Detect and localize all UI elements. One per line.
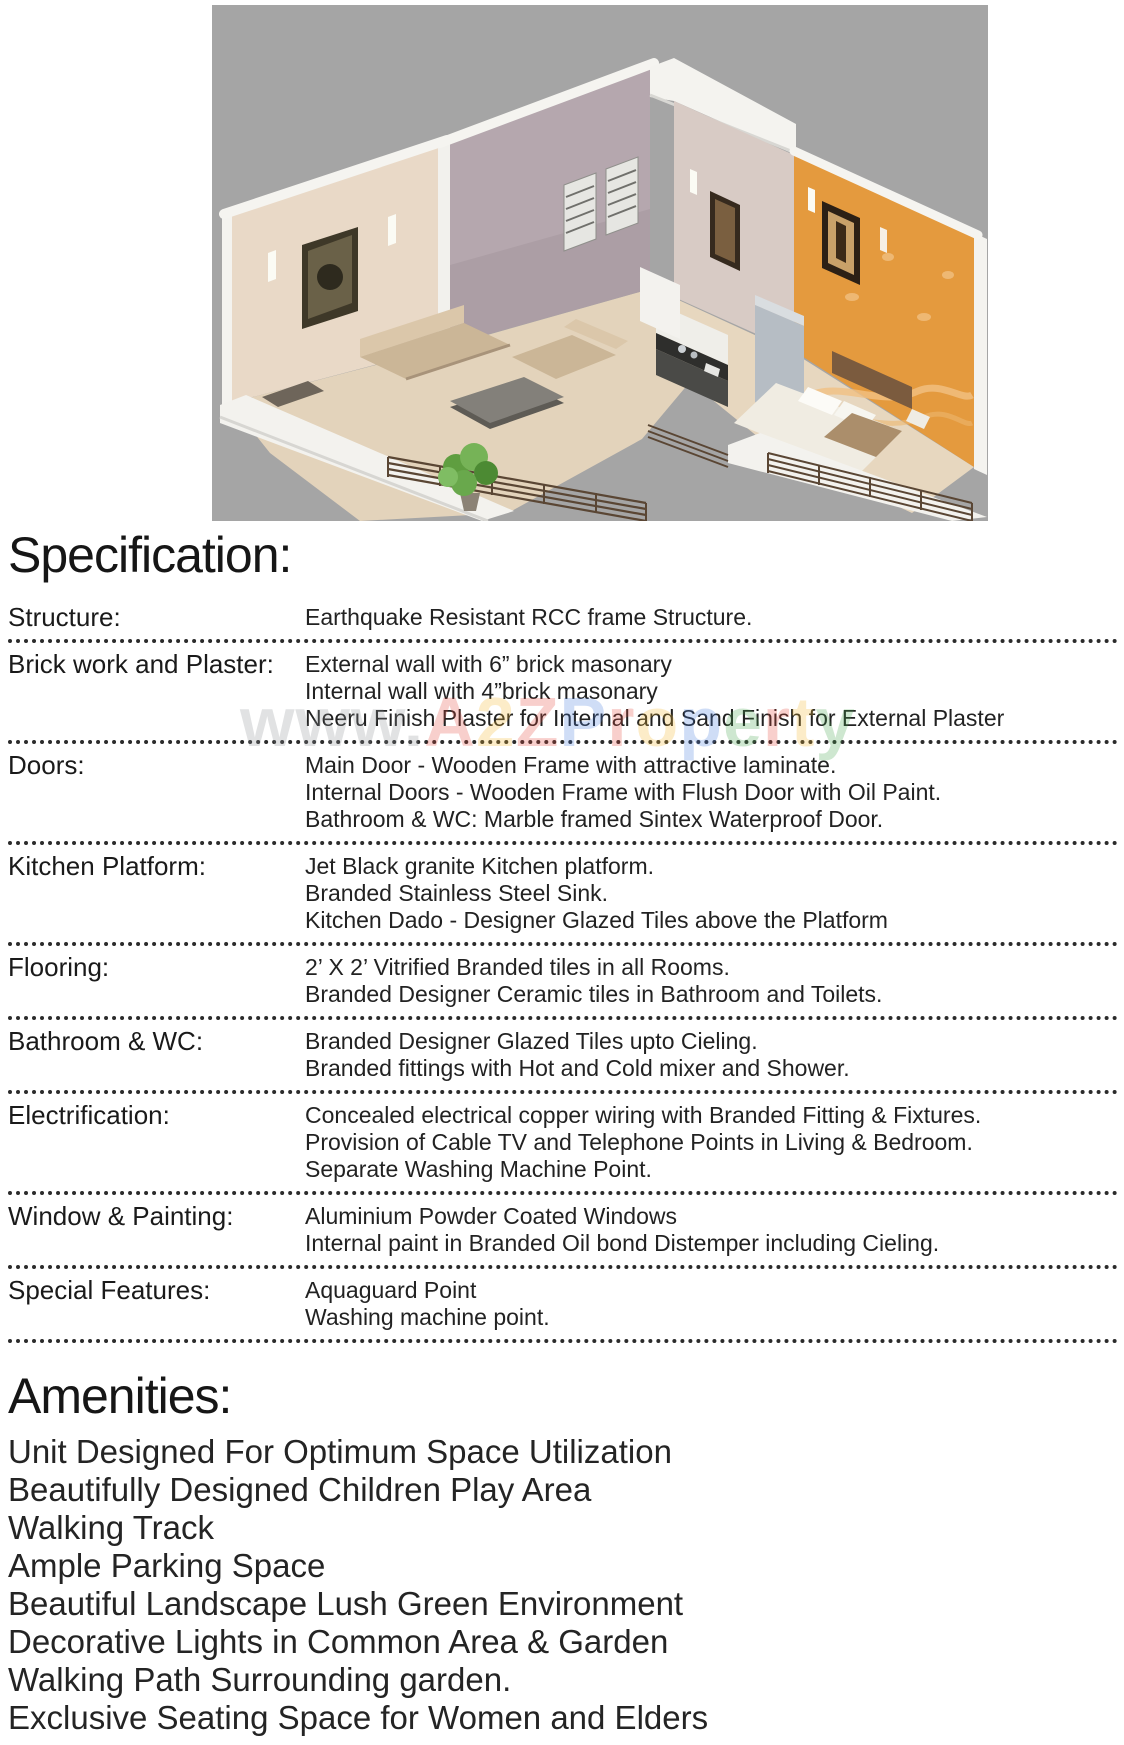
spec-value-line: Aluminium Powder Coated Windows	[305, 1203, 1118, 1230]
spec-row: Window & Painting: Aluminium Powder Coat…	[8, 1195, 1118, 1265]
spec-row: Brick work and Plaster: External wall wi…	[8, 643, 1118, 740]
content-area: Specification: Structure: Earthquake Res…	[8, 524, 1118, 1737]
wall-sconce-icon	[880, 227, 887, 253]
amenity-item: Walking Track	[8, 1509, 1118, 1547]
amenity-item: Beautifully Designed Children Play Area	[8, 1471, 1118, 1509]
wall-sconce-icon	[808, 187, 815, 213]
spec-value-line: Bathroom & WC: Marble framed Sintex Wate…	[305, 806, 1118, 833]
spec-value-line: Internal paint in Branded Oil bond Diste…	[305, 1230, 1118, 1257]
specification-title: Specification:	[8, 528, 1118, 582]
spec-row: Structure: Earthquake Resistant RCC fram…	[8, 596, 1118, 639]
spec-label: Bathroom & WC:	[8, 1027, 305, 1055]
amenities-title: Amenities:	[8, 1369, 1118, 1423]
spec-value-line: Neeru Finish Plaster for Internal and Sa…	[305, 705, 1118, 732]
amenity-item: Decorative Lights in Common Area & Garde…	[8, 1623, 1118, 1661]
spec-value-line: Earthquake Resistant RCC frame Structure…	[305, 604, 1118, 631]
spec-label: Brick work and Plaster:	[8, 650, 305, 678]
amenity-item: Beautiful Landscape Lush Green Environme…	[8, 1585, 1118, 1623]
spec-value-line: Internal Doors - Wooden Frame with Flush…	[305, 779, 1118, 806]
spec-value-line: Branded Designer Ceramic tiles in Bathro…	[305, 981, 1118, 1008]
spec-label: Electrification:	[8, 1101, 305, 1129]
spec-row: Special Features: Aquaguard Point Washin…	[8, 1269, 1118, 1339]
spec-value-line: Separate Washing Machine Point.	[305, 1156, 1118, 1183]
spec-value-line: Internal wall with 4”brick masonary	[305, 678, 1118, 705]
spec-value-line: Branded fittings with Hot and Cold mixer…	[305, 1055, 1118, 1082]
page-root: www.A2ZProperty Specification: Structure…	[0, 0, 1124, 1745]
amenity-item: Ample Parking Space	[8, 1547, 1118, 1585]
wall-sconce-icon	[690, 169, 697, 195]
amenities-list: Unit Designed For Optimum Space Utilizat…	[8, 1433, 1118, 1737]
spec-row: Flooring: 2’ X 2’ Vitrified Branded tile…	[8, 946, 1118, 1016]
spec-row: Doors: Main Door - Wooden Frame with att…	[8, 744, 1118, 841]
amenity-item: Exclusive Seating Space for Women and El…	[8, 1699, 1118, 1737]
spec-row: Bathroom & WC: Branded Designer Glazed T…	[8, 1020, 1118, 1090]
floor-plan-svg	[212, 5, 988, 521]
spec-label: Flooring:	[8, 953, 305, 981]
spec-value-line: Branded Stainless Steel Sink.	[305, 880, 1118, 907]
floor-plan-image	[212, 5, 988, 521]
spec-row: Electrification: Concealed electrical co…	[8, 1094, 1118, 1191]
spec-label: Kitchen Platform:	[8, 852, 305, 880]
spec-value-line: Aquaguard Point	[305, 1277, 1118, 1304]
spec-label: Doors:	[8, 751, 305, 779]
amenity-item: Unit Designed For Optimum Space Utilizat…	[8, 1433, 1118, 1471]
spec-label: Special Features:	[8, 1276, 305, 1304]
dotted-divider	[8, 1339, 1118, 1343]
spec-value-line: Kitchen Dado - Designer Glazed Tiles abo…	[305, 907, 1118, 934]
picture-frame-icon	[710, 191, 740, 271]
spec-value-line: Washing machine point.	[305, 1304, 1118, 1331]
spec-value-line: Provision of Cable TV and Telephone Poin…	[305, 1129, 1118, 1156]
amenity-item: Walking Path Surrounding garden.	[8, 1661, 1118, 1699]
spec-label: Window & Painting:	[8, 1202, 305, 1230]
spec-value-line: Branded Designer Glazed Tiles upto Cieli…	[305, 1028, 1118, 1055]
spec-value-line: Jet Black granite Kitchen platform.	[305, 853, 1118, 880]
spec-label: Structure:	[8, 603, 305, 631]
spec-value-line: Concealed electrical copper wiring with …	[305, 1102, 1118, 1129]
spec-row: Kitchen Platform: Jet Black granite Kitc…	[8, 845, 1118, 942]
spec-value-line: 2’ X 2’ Vitrified Branded tiles in all R…	[305, 954, 1118, 981]
spec-value-line: Main Door - Wooden Frame with attractive…	[305, 752, 1118, 779]
spec-value-line: External wall with 6” brick masonary	[305, 651, 1118, 678]
